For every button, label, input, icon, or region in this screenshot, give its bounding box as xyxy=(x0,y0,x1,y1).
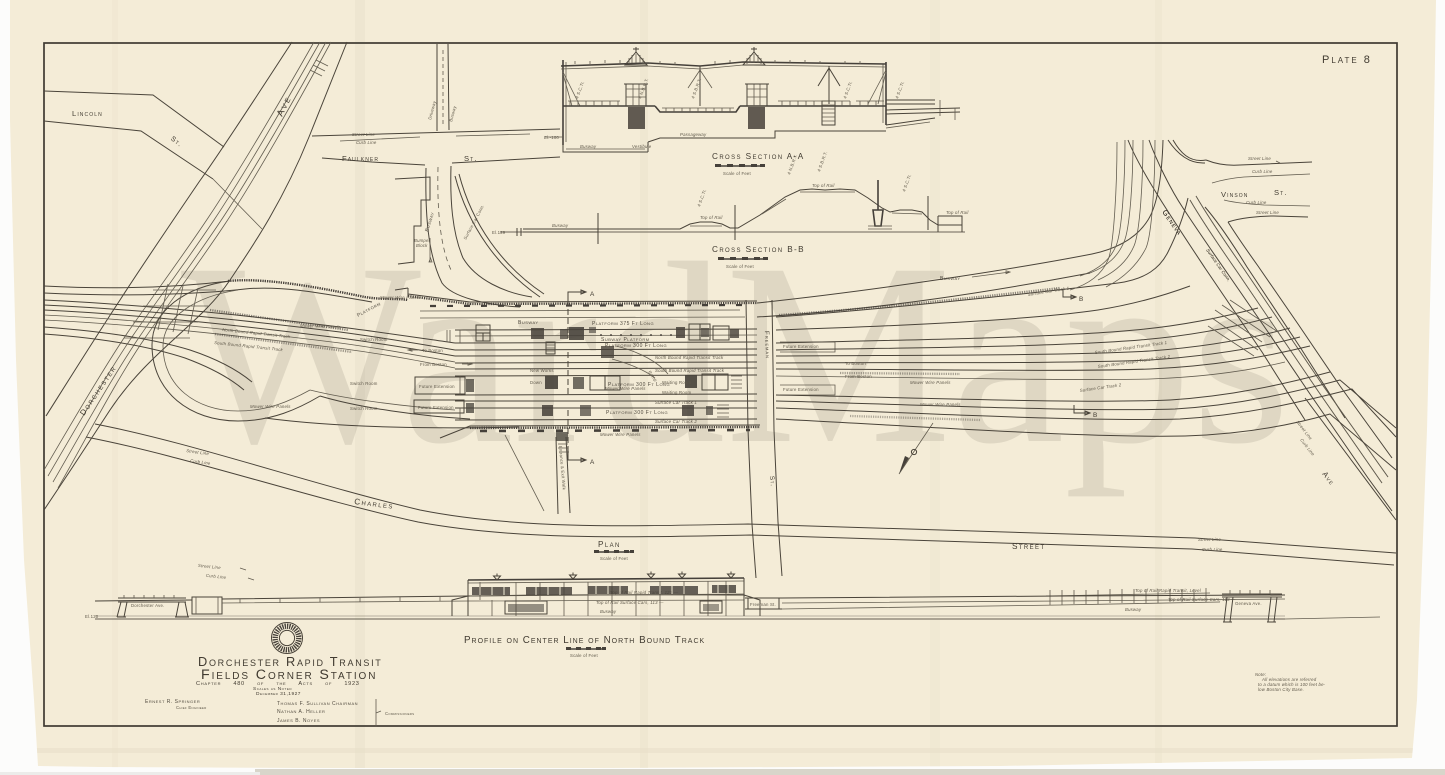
svg-text:Lincoln: Lincoln xyxy=(72,109,103,118)
svg-text:Chief Engineer: Chief Engineer xyxy=(176,705,207,710)
svg-text:Mower Wire Panels: Mower Wire Panels xyxy=(910,380,951,385)
svg-text:Cross Section B-B: Cross Section B-B xyxy=(712,245,805,254)
svg-text:Nathan A. Heller: Nathan A. Heller xyxy=(277,709,325,715)
svg-text:Freeman: Freeman xyxy=(763,331,771,359)
svg-text:Curb Line: Curb Line xyxy=(356,140,377,145)
svg-text:Switch Room: Switch Room xyxy=(350,381,378,386)
svg-text:Future Extension: Future Extension xyxy=(783,344,819,349)
svg-text:Platform 375 Ft Long: Platform 375 Ft Long xyxy=(592,321,654,327)
svg-text:Mower Wire Panels: Mower Wire Panels xyxy=(600,432,641,437)
svg-text:To Boston: To Boston xyxy=(422,348,443,353)
svg-text:Future Extension: Future Extension xyxy=(419,384,455,389)
svg-text:El.-100: El.-100 xyxy=(544,135,559,140)
svg-text:From Boston: From Boston xyxy=(845,374,872,379)
svg-text:Platform 300 Ft Long: Platform 300 Ft Long xyxy=(608,382,670,388)
svg-text:Top of Rail: Top of Rail xyxy=(812,183,835,188)
svg-text:Street Line: Street Line xyxy=(1248,156,1271,161)
svg-text:Scale of Feet: Scale of Feet xyxy=(570,653,599,658)
svg-text:Thomas F. Sullivan Chairman: Thomas F. Sullivan Chairman xyxy=(277,701,358,707)
svg-text:Street Line: Street Line xyxy=(1256,210,1279,215)
svg-text:Busway: Busway xyxy=(518,320,539,326)
svg-text:Scale of Feet: Scale of Feet xyxy=(600,556,629,561)
svg-text:B: B xyxy=(1093,412,1098,419)
svg-text:St.: St. xyxy=(464,154,478,163)
svg-text:Curb Line: Curb Line xyxy=(1252,169,1273,174)
svg-text:Busway: Busway xyxy=(552,223,569,228)
svg-text:Busway: Busway xyxy=(1125,607,1142,612)
svg-text:St.: St. xyxy=(1274,188,1288,197)
svg-text:Top of Rail: Top of Rail xyxy=(700,215,723,220)
svg-text:Dorchester Ave.: Dorchester Ave. xyxy=(131,603,165,608)
svg-text:Curb Line: Curb Line xyxy=(1246,200,1267,205)
svg-text:Waiting Room: Waiting Room xyxy=(662,380,691,385)
svg-text:A: A xyxy=(590,291,595,298)
svg-text:Faulkner: Faulkner xyxy=(342,154,379,163)
svg-text:Top of Rail Rapid Transit, Lev: Top of Rail Rapid Transit, Level xyxy=(1135,588,1202,593)
svg-text:Street Line: Street Line xyxy=(1198,537,1221,542)
svg-text:New Works: New Works xyxy=(530,368,554,373)
svg-text:El.129: El.129 xyxy=(492,230,506,235)
svg-text:James B. Noyes: James B. Noyes xyxy=(277,718,320,724)
svg-text:Street Line: Street Line xyxy=(352,132,375,137)
svg-text:Mower Wire Panels: Mower Wire Panels xyxy=(380,295,421,300)
svg-text:Mower Wire Panels: Mower Wire Panels xyxy=(250,404,291,409)
svg-text:Curb Line: Curb Line xyxy=(1202,547,1223,552)
svg-text:From Boston: From Boston xyxy=(420,362,447,367)
svg-text:Top of Rail: Top of Rail xyxy=(946,210,969,215)
svg-text:Future Extension: Future Extension xyxy=(418,405,454,410)
svg-text:December 31,1927: December 31,1927 xyxy=(256,691,301,697)
svg-text:Mower Wire Panels: Mower Wire Panels xyxy=(920,402,961,407)
svg-text:Platform 300 Ft Long: Platform 300 Ft Long xyxy=(605,343,667,349)
svg-text:Scale of Feet: Scale of Feet xyxy=(726,264,755,269)
svg-text:Passageway: Passageway xyxy=(680,132,707,137)
svg-text:Busway: Busway xyxy=(940,276,961,282)
svg-text:Switch Room: Switch Room xyxy=(360,337,388,342)
svg-text:B: B xyxy=(1079,296,1084,303)
svg-text:Waiting Room: Waiting Room xyxy=(662,390,691,395)
svg-text:Vestibule: Vestibule xyxy=(632,144,652,149)
svg-text:Freeman St.: Freeman St. xyxy=(750,602,776,607)
svg-text:Scale of Feet: Scale of Feet xyxy=(723,171,752,176)
svg-text:North Bound Rapid Transit Trac: North Bound Rapid Transit Track xyxy=(655,355,724,360)
svg-text:South Bound Rapid Transit Trac: South Bound Rapid Transit Track xyxy=(655,368,725,373)
svg-text:Geneva Ave.: Geneva Ave. xyxy=(1235,601,1262,606)
svg-text:St.: St. xyxy=(768,476,776,487)
svg-text:A: A xyxy=(590,459,595,466)
svg-text:Profile on Center Line of Nort: Profile on Center Line of North Bound Tr… xyxy=(464,635,705,646)
svg-text:Busway: Busway xyxy=(600,609,617,614)
svg-text:Block: Block xyxy=(416,243,428,248)
svg-text:Commissioners: Commissioners xyxy=(385,711,414,716)
svg-text:Top of Rail Surface Cars, 113: Top of Rail Surface Cars, 113 — xyxy=(1168,597,1236,602)
svg-text:Vinson: Vinson xyxy=(1221,190,1249,199)
svg-text:Surface Car Track 2: Surface Car Track 2 xyxy=(655,419,697,424)
svg-text:Street: Street xyxy=(1012,542,1046,551)
svg-text:Future Extension: Future Extension xyxy=(783,387,819,392)
svg-text:Platform 300 Ft Long: Platform 300 Ft Long xyxy=(606,410,668,416)
svg-text:Busway: Busway xyxy=(580,144,597,149)
svg-text:To Boston: To Boston xyxy=(845,361,866,366)
svg-text:Top of Rail Surface Cars, 113: Top of Rail Surface Cars, 113 — xyxy=(596,600,664,605)
svg-text:low Boston City Base.: low Boston City Base. xyxy=(1258,687,1304,692)
svg-text:Surface Car Track 1: Surface Car Track 1 xyxy=(655,400,697,405)
svg-text:Plan: Plan xyxy=(598,540,621,549)
svg-text:Switch Room: Switch Room xyxy=(350,406,378,411)
svg-text:Down: Down xyxy=(530,380,542,385)
svg-text:Plate 8: Plate 8 xyxy=(1322,54,1372,66)
